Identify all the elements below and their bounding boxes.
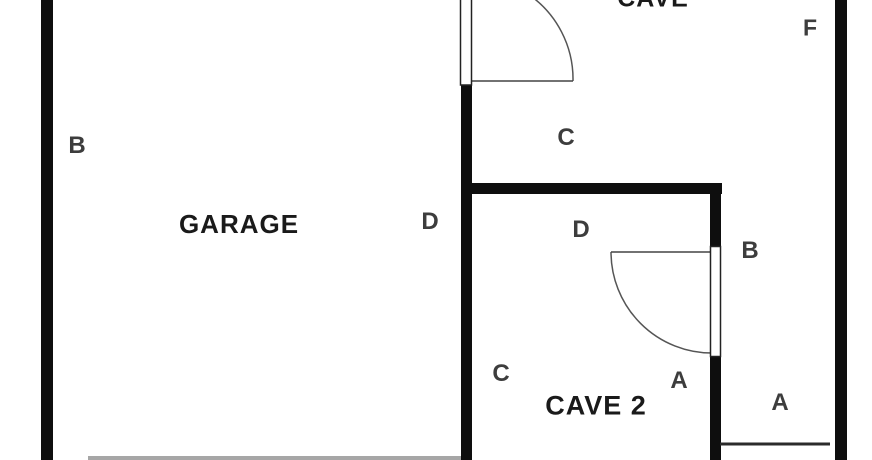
floorplan: GARAGE CAVE CAVE 2 B D C F D B C A A xyxy=(0,0,872,460)
cave-door-leaf xyxy=(461,0,472,85)
marker-garage-b: B xyxy=(68,134,85,158)
marker-cave2-a: A xyxy=(670,369,687,393)
cave-door-swing-arc xyxy=(528,0,573,81)
room-label-garage: GARAGE xyxy=(179,211,299,237)
cave2-door-swing-arc xyxy=(611,252,712,353)
marker-cave-f: F xyxy=(803,17,817,40)
marker-cave2-d: D xyxy=(572,218,589,242)
marker-cave2-c: C xyxy=(492,362,509,386)
cave2-door-leaf xyxy=(711,247,721,357)
room-label-cave: CAVE xyxy=(617,0,689,12)
marker-annex-a: A xyxy=(771,391,788,415)
marker-cave-c: C xyxy=(557,126,574,150)
room-label-cave2: CAVE 2 xyxy=(545,393,647,420)
marker-garage-d: D xyxy=(421,210,438,234)
marker-cave2-b: B xyxy=(741,239,758,263)
